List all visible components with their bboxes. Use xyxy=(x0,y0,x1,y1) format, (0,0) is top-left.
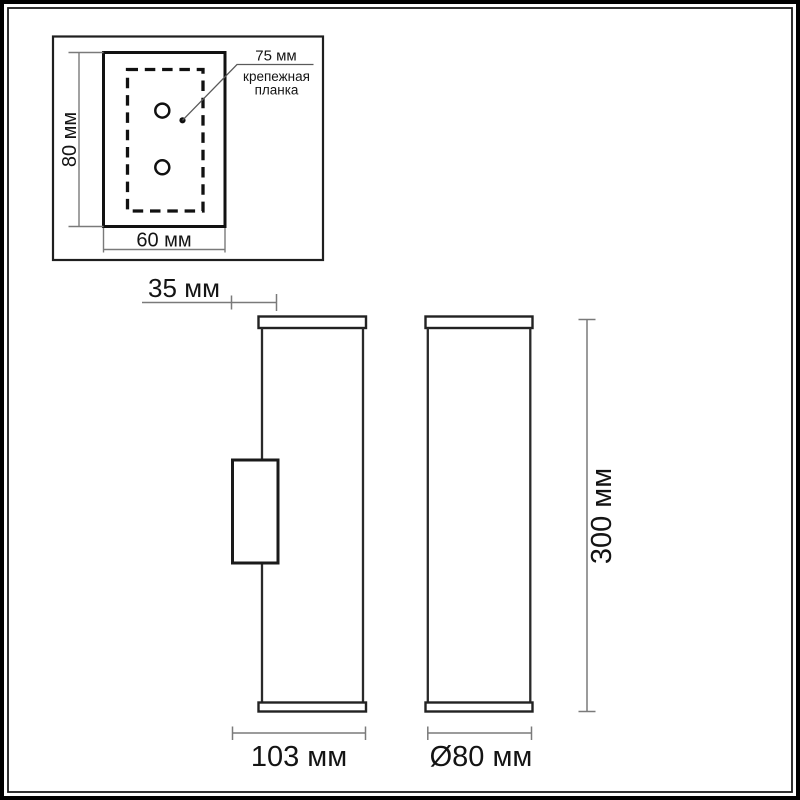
front-view-top-cap xyxy=(426,317,533,329)
wall-bracket xyxy=(233,460,279,563)
wall-offset-dimension-label: 35 мм xyxy=(148,273,220,303)
screw-hole-bottom xyxy=(155,160,169,174)
holes-spacing-label: 75 мм xyxy=(255,48,296,65)
inset-height-dimension-label: 80 мм xyxy=(59,112,81,167)
depth-dimension-label: 103 мм xyxy=(251,741,347,773)
technical-drawing: 80 мм 60 мм 75 мм крепежная планка 35 мм… xyxy=(0,0,800,800)
side-view-bottom-cap xyxy=(259,703,367,712)
height-dimension-label: 300 мм xyxy=(586,468,618,564)
front-view-bottom-cap xyxy=(426,703,533,712)
drawing-page: 80 мм 60 мм 75 мм крепежная планка 35 мм… xyxy=(0,0,800,800)
screw-hole-top xyxy=(155,104,169,118)
side-view-top-cap xyxy=(259,317,367,329)
diameter-dimension-label: Ø80 мм xyxy=(430,741,533,773)
inset-width-dimension-label: 60 мм xyxy=(136,230,191,252)
mounting-plate-inset: 80 мм 60 мм 75 мм крепежная планка xyxy=(53,37,323,261)
bracket-caption-line2: планка xyxy=(255,83,299,98)
mounting-plate xyxy=(104,53,226,227)
